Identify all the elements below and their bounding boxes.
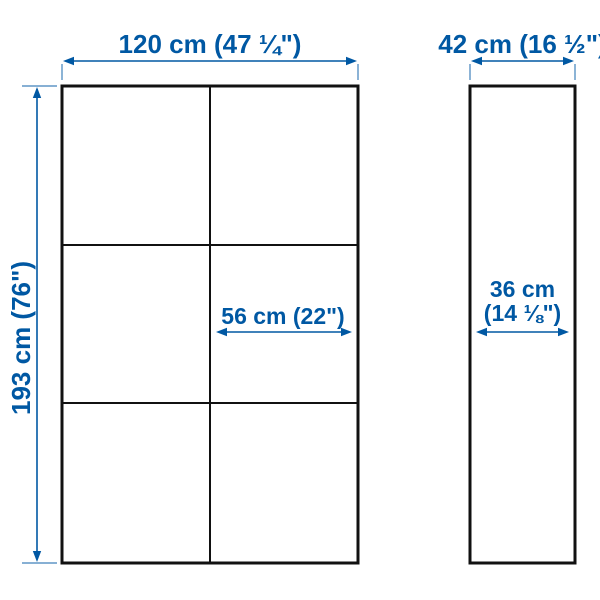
side-depth-label: 42 cm (16 ½") [422,31,600,57]
arrow-down-icon [33,551,41,562]
side-inner-depth-label: 36 cm (14 ⅛") [442,277,600,325]
front-width-label: 120 cm (47 ¼") [60,31,360,57]
arrow-left-icon [63,57,74,65]
arrow-up-icon [33,87,41,98]
width-dimension [62,57,358,80]
front-height-label: 193 cm (76") [8,261,34,415]
side-inner-depth-label-line1: 36 cm [442,277,600,301]
side-inner-depth-label-line2: (14 ⅛") [442,301,600,325]
dimension-diagram: 120 cm (47 ¼") 42 cm (16 ½") 193 cm (76"… [0,0,600,600]
front-inner-width-label: 56 cm (22") [183,303,383,329]
arrow-right-icon [346,57,357,65]
depth-dimension [470,57,575,80]
